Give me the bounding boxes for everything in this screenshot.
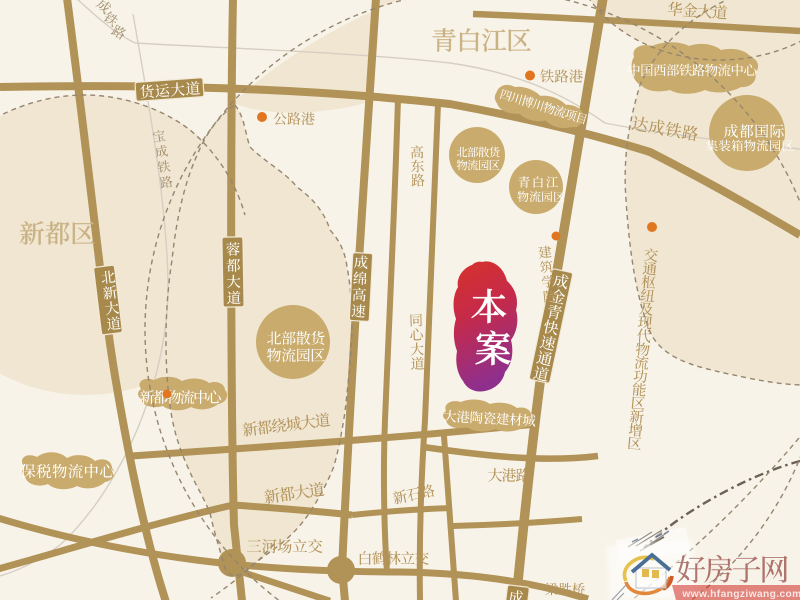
svg-text:www.hfangziwang.com: www.hfangziwang.com — [681, 589, 800, 600]
